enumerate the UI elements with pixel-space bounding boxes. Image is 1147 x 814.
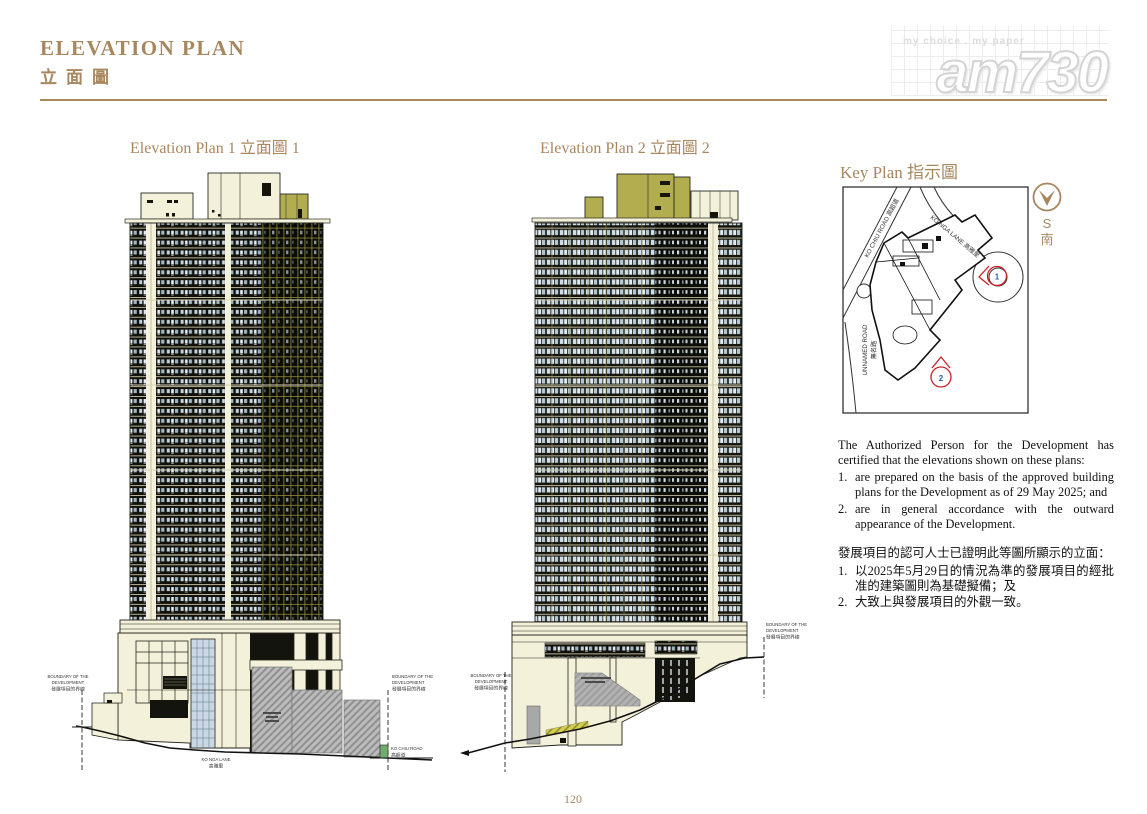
svg-text:S: S [1043,216,1052,231]
tower1-roof-structures [125,173,330,223]
certification-item-en-2: 2. are in general accordance with the ou… [838,502,1114,533]
am730-logo: my choice . my paper am730 [891,26,1109,96]
am730-brand: am730 [936,39,1107,106]
svg-text:發展項目的界線: 發展項目的界線 [392,686,426,693]
tower2-roof-structures [532,174,738,222]
svg-text:UNNAMED ROAD: UNNAMED ROAD [862,324,869,375]
svg-text:BOUNDARY OF THE: BOUNDARY OF THE [470,673,511,678]
svg-text:1: 1 [995,273,1000,282]
item-number: 1. [838,470,855,501]
key-plan-drawing: KO CHIU ROAD 高超道 KO NGA LANE 高雅里 UNNAMED… [835,150,1147,450]
compass-south-icon: S 南 [1034,184,1061,248]
tower2-podium [512,622,747,748]
svg-text:BOUNDARY OF THE: BOUNDARY OF THE [392,674,433,679]
item-number: 2. [838,502,855,533]
svg-text:DEVELOPMENT: DEVELOPMENT [766,628,799,633]
boundary-left-2: BOUNDARY OF THE DEVELOPMENT 發展項目的界線 [470,672,511,772]
tower1-facade [130,223,323,630]
certification-intro-zh: 發展項目的認可人士已證明此等圖所顯示的立面： [838,545,1114,562]
svg-text:無名路: 無名路 [870,340,878,359]
svg-text:高雅里: 高雅里 [209,763,224,770]
svg-text:DEVELOPMENT: DEVELOPMENT [392,680,425,685]
elevation-plan-2-drawing: BOUNDARY OF THE DEVELOPMENT 發展項目的界線 BOUN… [450,158,820,783]
item-number: 1. [838,564,855,595]
page-title-en: ELEVATION PLAN [40,36,245,61]
certification-item-zh-1: 1. 以2025年5月29日的情況為準的發展項目的經批准的建築圖則為基礎擬備；及 [838,564,1114,595]
svg-text:高超道: 高超道 [391,752,406,759]
certification-item-en-1: 1. are prepared on the basis of the appr… [838,470,1114,501]
ko-nga-lane-label: KO NGA LANE 高雅里 [202,757,231,770]
boundary-right-2: BOUNDARY OF THE DEVELOPMENT 發展項目的界線 [764,622,807,698]
svg-text:KO NGA LANE: KO NGA LANE [202,757,231,762]
certification-item-zh-2: 2. 大致上與發展項目的外觀一致。 [838,595,1114,610]
page-title-zh: 立面圖 [40,63,118,88]
svg-text:BOUNDARY OF THE: BOUNDARY OF THE [47,674,88,679]
svg-text:KO CHIU ROAD: KO CHIU ROAD [391,746,423,751]
boundary-left-1: BOUNDARY OF THE DEVELOPMENT 發展項目的界線 [47,674,92,770]
item-number: 2. [838,595,855,610]
elevation-plan-1-drawing: BOUNDARY OF THE DEVELOPMENT 發展項目的界線 BOUN… [35,158,435,783]
svg-text:發展項目的界線: 發展項目的界線 [474,685,508,692]
elevation-plan-1-title: Elevation Plan 1 立面圖 1 [130,134,300,158]
item-text: 以2025年5月29日的情況為準的發展項目的經批准的建築圖則為基礎擬備；及 [855,564,1114,595]
svg-text:南: 南 [1040,232,1053,247]
certification-intro-en: The Authorized Person for the Developmen… [838,438,1114,469]
elevation-plan-2-title: Elevation Plan 2 立面圖 2 [540,134,710,158]
page-number: 120 [538,792,608,807]
brochure-page: ELEVATION PLAN 立面圖 my choice . my paper … [0,0,1147,814]
item-text: 大致上與發展項目的外觀一致。 [855,595,1114,610]
svg-text:2: 2 [939,374,944,383]
svg-text:發展項目的界線: 發展項目的界線 [766,634,800,641]
svg-text:DEVELOPMENT: DEVELOPMENT [52,680,85,685]
svg-text:DEVELOPMENT: DEVELOPMENT [475,679,508,684]
item-text: are prepared on the basis of the approve… [855,470,1114,501]
item-text: are in general accordance with the outwa… [855,502,1114,533]
svg-text:發展項目的界線: 發展項目的界線 [51,686,85,693]
tower2-facade [535,223,742,622]
certification-block: The Authorized Person for the Developmen… [838,438,1114,611]
svg-text:BOUNDARY OF THE: BOUNDARY OF THE [766,622,807,627]
